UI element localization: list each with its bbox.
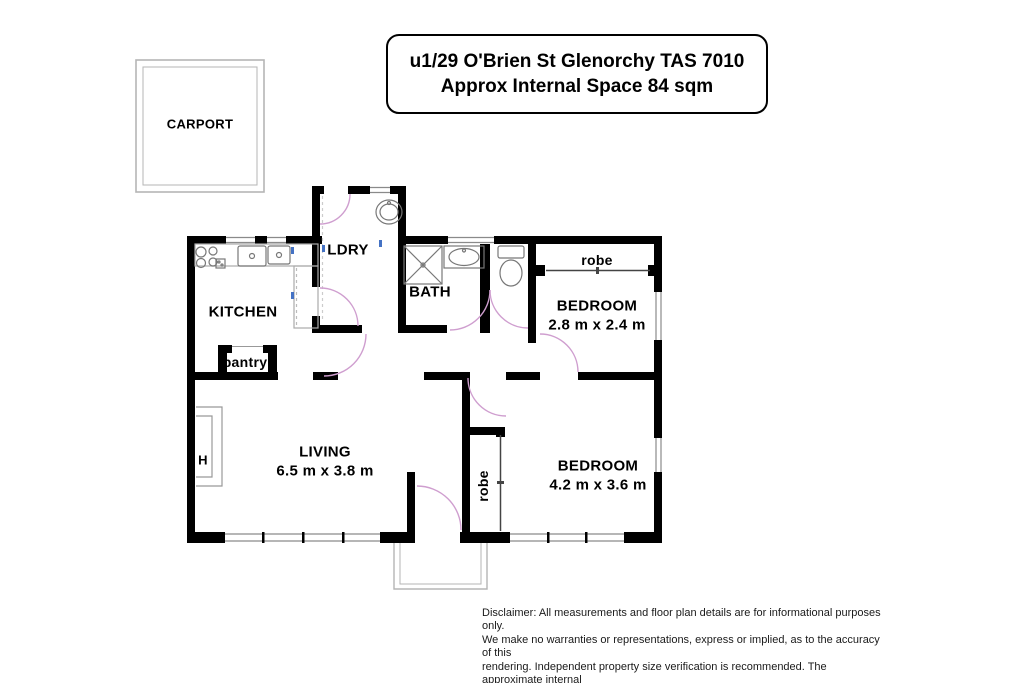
room-label-pantry: pantry bbox=[223, 354, 268, 370]
room-label-bedroom1: BEDROOM bbox=[557, 298, 637, 315]
title-box: u1/29 O'Brien St Glenorchy TAS 7010 Appr… bbox=[386, 34, 768, 114]
toilet-icon bbox=[498, 246, 524, 286]
room-dims-bedroom2: 4.2 m x 3.6 m bbox=[549, 477, 646, 494]
room-label-living: LIVING bbox=[299, 444, 351, 461]
robe1-label: robe bbox=[581, 252, 613, 268]
heater-label: H bbox=[198, 453, 208, 468]
internal-space-line: Approx Internal Space 84 sqm bbox=[441, 76, 713, 98]
sink-icon bbox=[238, 246, 290, 266]
hall-door-arc bbox=[324, 334, 366, 376]
shower-icon bbox=[404, 246, 442, 284]
bedroom2-door-arc bbox=[468, 378, 506, 416]
laundry-top-door-arc bbox=[320, 194, 350, 224]
room-label-laundry: LDRY bbox=[327, 242, 368, 259]
laundry-tub-icon bbox=[376, 200, 402, 224]
floorplan-page: u1/29 O'Brien St Glenorchy TAS 7010 Appr… bbox=[0, 0, 1024, 683]
disclaimer-line: We make no warranties or representations… bbox=[482, 634, 882, 661]
porch-outline bbox=[394, 543, 487, 589]
heater-icon bbox=[196, 407, 222, 486]
room-label-bedroom2: BEDROOM bbox=[558, 458, 638, 475]
laundry-side-door-arc bbox=[320, 288, 358, 326]
fixtures bbox=[195, 196, 524, 486]
front-door-arc bbox=[417, 486, 461, 530]
stove-icon bbox=[196, 247, 225, 268]
wc-door-arc bbox=[490, 290, 528, 328]
room-label-carport: CARPORT bbox=[167, 117, 233, 132]
disclaimer-line: rendering. Independent property size ver… bbox=[482, 661, 882, 683]
room-dims-living: 6.5 m x 3.8 m bbox=[276, 463, 373, 480]
disclaimer-line: Disclaimer: All measurements and floor p… bbox=[482, 607, 882, 634]
address-line: u1/29 O'Brien St Glenorchy TAS 7010 bbox=[410, 51, 745, 73]
robe2-label: robe bbox=[475, 470, 491, 502]
disclaimer: Disclaimer: All measurements and floor p… bbox=[482, 607, 882, 683]
room-label-bath: BATH bbox=[409, 284, 451, 301]
room-label-kitchen: KITCHEN bbox=[209, 304, 278, 321]
room-dims-bedroom1: 2.8 m x 2.4 m bbox=[548, 317, 645, 334]
vanity-sink-icon bbox=[444, 246, 484, 268]
bedroom1-door-arc bbox=[540, 334, 578, 372]
